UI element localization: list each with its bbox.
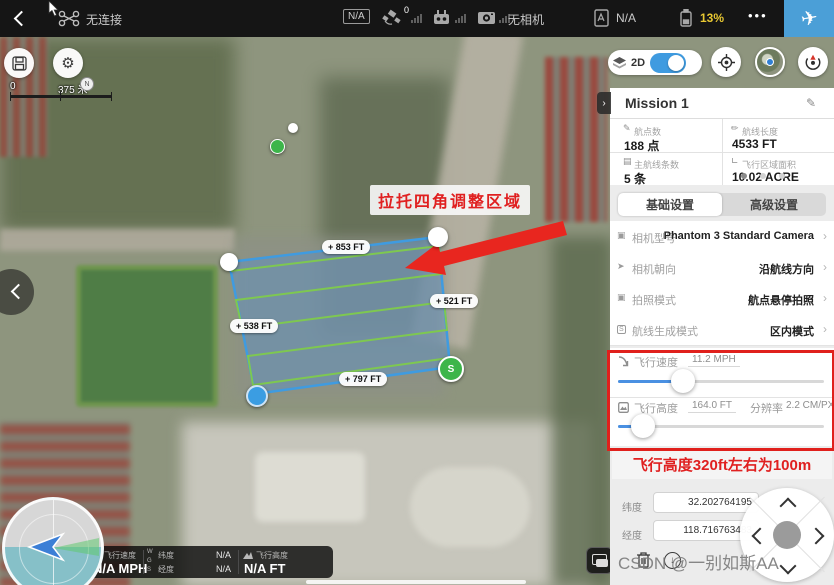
chevron-right-icon: › [823,322,827,336]
layers-icon [613,57,626,69]
back-button[interactable] [8,8,34,30]
nudge-down-button[interactable] [780,558,797,575]
stat-area: ∟ 飞行区域面积 10.02 ACRE [728,154,834,187]
edge-distance-label: + 521 FT [430,294,478,308]
2d-toggle[interactable] [650,53,686,73]
telemetry-lng-label: 经度 [158,564,174,575]
edit-mission-button[interactable]: ✎ [800,95,822,111]
telemetry-lng-value: N/A [216,564,231,574]
area-handle-top-right[interactable] [428,227,448,247]
setting-capture-mode[interactable]: ▣ 拍照模式 航点悬停拍照 › [610,283,834,315]
gps-signal-bars-icon [411,14,422,23]
edge-distance-label: + 797 FT [339,372,387,386]
datum-letter: S [147,567,151,573]
crosshair-locate-icon [718,54,735,71]
delete-mission-button[interactable] [636,551,651,571]
drone-icon [58,10,80,27]
nudge-up-button[interactable] [780,498,797,515]
pencil-icon: ✎ [806,96,816,110]
setting-value: 沿航线方向 [759,261,814,277]
altitude-slider-thumb[interactable] [631,414,655,438]
terrain-patch [235,237,445,397]
speed-icon [618,356,629,367]
telemetry-bar: 飞行速度 N/A MPH W G S 纬度 N/A 经度 N/A 飞行高度 N/… [86,546,333,578]
stat-route-length: ✏ 航线长度 4533 FT [728,121,834,154]
telemetry-lat-label: 纬度 [158,550,174,561]
stat-value: 4533 FT [732,137,777,151]
toggle-knob [668,55,684,71]
arrow-down-icon: ↓ [664,552,681,569]
map-settings-button[interactable]: ⚙ [53,48,83,78]
speed-value: 11.2 MPH [688,354,740,367]
resolution-label: 分辨率 [750,400,783,416]
altitude-icon [243,551,253,559]
datum-letter: G [147,558,152,564]
battery-icon [678,9,694,27]
speed-slider-thumb[interactable] [671,369,695,393]
area-handle-bottom-left[interactable] [246,385,268,407]
terrain-patch [255,452,365,522]
nudge-left-button[interactable] [752,528,769,545]
scale-bar [10,95,112,98]
terrain-patch [76,265,218,407]
chevron-right-icon: › [823,260,827,274]
mission-header: Mission 1 ✎ [610,88,834,119]
top-status-bar: 无连接 N/A 0 无相机 N/A 13% ••• ✈ [0,0,834,37]
view-2d-label: 2D [631,57,645,69]
airplane-icon: ✈ [799,5,820,33]
minimap-position-dot [766,58,774,66]
terrain-patch [552,237,612,585]
route-length-icon: ✏ [731,124,739,134]
chevron-right-icon: › [823,291,827,305]
stat-waypoints: ✎ 航点数 188 点 [620,121,732,154]
speed-slider[interactable] [618,380,824,383]
area-handle-top-left[interactable] [220,253,238,271]
setting-camera-heading[interactable]: ➤ 相机朝向 沿航线方向 › [610,252,834,284]
edge-distance-label: + 853 FT [322,240,370,254]
resolution-value: 2.2 CM/PX [782,400,834,412]
setting-camera-model[interactable]: ▣ 相机型号 Phantom 3 Standard Camera › [610,221,834,253]
setting-route-mode[interactable]: S 航线生成模式 区内模式 › [610,314,834,346]
setting-label: 航线生成模式 [632,323,698,339]
camera-icon: ▣ [617,231,626,241]
floppy-disk-icon [12,56,27,71]
picture-in-picture-icon-fill [596,559,608,567]
setting-label: 相机朝向 [632,261,676,277]
tab-advanced-settings[interactable]: 高级设置 [722,193,826,216]
terrain-patch [0,229,235,251]
remote-controller-icon [432,10,451,25]
flight-mode-value: N/A [616,11,636,25]
download-button[interactable]: ↓ [664,551,681,569]
app-screen: 无连接 N/A 0 无相机 N/A 13% ••• ✈ [0,0,834,585]
view-switch-button[interactable] [586,547,613,574]
setting-value: 区内模式 [770,323,814,339]
compass-mode-button[interactable] [798,47,828,77]
takeoff-button[interactable]: ✈ [784,0,834,37]
map-mode-pill: 2D [608,50,702,75]
tutorial-annotation: 拉托四角调整区域 [370,185,530,215]
chevron-right-icon: › [823,229,827,243]
mission-panel: Mission 1 ✎ ✎ 航点数 188 点 ✏ 航线长度 4533 FT ▤… [610,88,834,585]
datum-letter: W [147,549,153,555]
gps-mode-badge: N/A [343,9,370,24]
map-marker-dot [288,123,298,133]
more-options-button[interactable]: ••• [742,7,774,24]
gear-icon: ⚙ [61,54,74,72]
flight-mode-icon [594,9,611,27]
battery-level: 13% [700,11,724,25]
nudge-right-button[interactable] [808,528,825,545]
stat-value: 5 条 [624,170,646,187]
altitude-icon [618,402,629,413]
panel-collapse-tab[interactable]: › [597,92,611,114]
attitude-indicator [2,497,104,585]
area-ruler-icon: ∟ [731,157,739,167]
camera-status: 无相机 [508,11,544,28]
aircraft-heading-icon [5,500,101,585]
stat-main-lines: ▤ 主航线条数 5 条 [620,154,732,187]
setting-value: 航点悬停拍照 [748,292,814,308]
save-button[interactable] [4,48,34,78]
back-chevron-icon [13,10,29,26]
mouse-cursor [48,1,60,17]
start-point-marker[interactable]: S [438,356,464,382]
lines-count-icon: ▤ [623,157,632,167]
telemetry-lat-value: N/A [216,550,231,560]
minimap-button[interactable] [755,47,785,77]
terrain-patch [545,57,607,222]
divider [610,397,834,398]
connection-status: 无连接 [86,11,122,28]
telemetry-speed-label: 飞行速度 [104,550,136,561]
settings-tabs: 基础设置 高级设置 [618,193,826,216]
nudge-dpad [740,488,834,582]
divider [238,550,239,574]
satellite-count: 0 [404,5,409,15]
latitude-input[interactable] [653,492,759,513]
compass-north-badge: N [80,77,94,91]
latitude-label: 纬度 [622,499,642,514]
setting-label: 拍照模式 [632,292,676,308]
camera-icon: ▣ [617,293,626,303]
telemetry-alt-value: N/A FT [244,561,285,576]
divider [143,550,144,574]
edge-distance-label: + 538 FT [230,319,278,333]
scan-mode-icon: S [617,325,626,334]
chevron-right-icon: › [602,98,605,109]
map-marker-green [270,139,285,154]
altitude-note: 飞行高度320ft左右为100m [612,449,832,479]
scale-zero-label: 0 [10,81,16,92]
home-indicator[interactable] [306,580,526,584]
rc-signal-bars-icon [455,14,466,23]
terrain-patch [410,467,530,547]
direction-icon: ➤ [617,262,625,272]
compass-icon [804,52,822,72]
page-dots[interactable] [741,173,785,179]
divider [610,152,834,153]
chevron-left-icon [10,283,26,299]
longitude-label: 经度 [622,527,642,542]
speed-label: 飞行速度 [634,354,678,370]
satellite-icon [381,9,401,27]
camera-icon [478,11,495,24]
tab-basic-settings[interactable]: 基础设置 [618,193,722,216]
locate-button[interactable] [711,47,741,77]
left-panel-collapse-button[interactable] [0,269,34,315]
setting-value: Phantom 3 Standard Camera [664,230,814,242]
altitude-value: 164.0 FT [688,400,736,413]
trash-icon [636,551,651,568]
mission-title: Mission 1 [625,95,689,111]
telemetry-alt-label: 飞行高度 [256,550,288,561]
waypoint-icon: ✎ [623,124,631,134]
nudge-center-button[interactable] [773,521,801,549]
